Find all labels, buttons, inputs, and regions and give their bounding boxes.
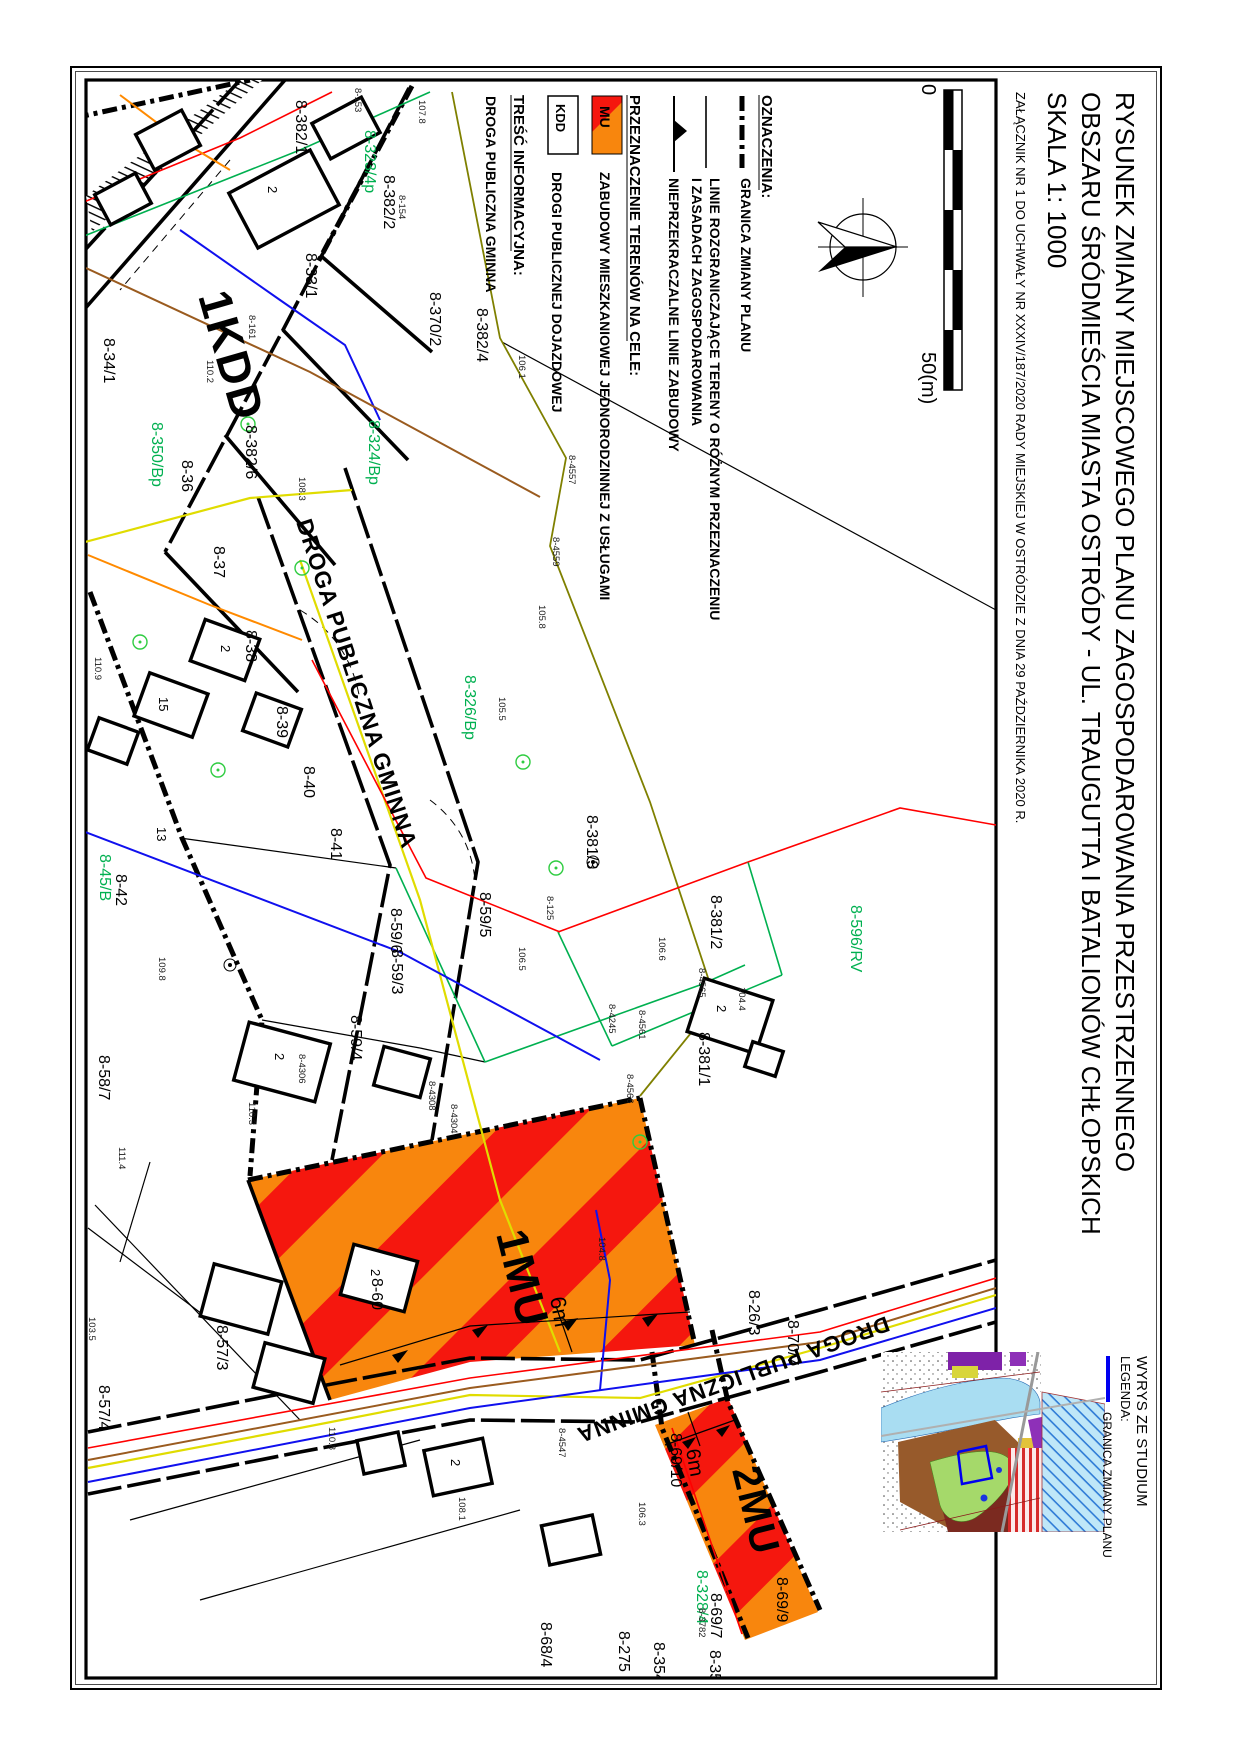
tiny-labels-item: 8-4561 bbox=[636, 1010, 647, 1040]
parcel-labels-item: 8-350/Bp bbox=[148, 422, 165, 487]
parcel-labels-item: 8-323/4p bbox=[361, 130, 378, 193]
tree-icon bbox=[516, 755, 530, 769]
building-labels-item: 2 bbox=[272, 1053, 287, 1060]
parcel-labels-item: 8-324/Bp bbox=[365, 420, 382, 485]
parcel-labels-item: 8-69/7 bbox=[707, 1593, 724, 1638]
plan-title-line1: RYSUNEK ZMIANY MIEJSCOWEGO PLANU ZAGOSPO… bbox=[1110, 92, 1140, 1172]
linie-rozgraniczajace-label-2: I ZASADACH ZAGOSPODAROWANIA bbox=[689, 178, 705, 426]
tiny-labels-item: 8-4547 bbox=[556, 1428, 567, 1458]
tiny-labels-item: 106.1 bbox=[516, 355, 527, 379]
parcel-labels-item: 8-381/2 bbox=[707, 895, 724, 949]
parcel-labels-item: 8-41 bbox=[327, 828, 344, 860]
plan-title-line2: OBSZARU ŚRÓDMIEŚCIA MIASTA OSTRÓDY - UL.… bbox=[1076, 92, 1106, 1235]
parcel-labels-item: 8-36 bbox=[178, 460, 195, 492]
tiny-labels-item: 8-3782 bbox=[696, 1608, 707, 1638]
building-labels-item: 2 bbox=[265, 186, 280, 193]
parcel-labels-item: 8-275 bbox=[615, 1631, 632, 1672]
tiny-labels-item: 110.3 bbox=[246, 1102, 257, 1125]
tiny-labels-item: 8-154 bbox=[396, 195, 407, 219]
parcel-labels-item: 8-370/2 bbox=[426, 292, 443, 346]
parcel-labels-item: 8-57/3 bbox=[213, 1325, 230, 1370]
tiny-labels-item: 8-153 bbox=[352, 88, 363, 112]
kdd-label: DROGI PUBLICZNEJ DOJAZDOWEJ bbox=[549, 172, 565, 412]
tiny-labels-item: 8-4306 bbox=[296, 1054, 307, 1084]
nieprzekraczalne-symbol bbox=[674, 96, 687, 172]
plan-scale: SKALA 1: 1000 bbox=[1042, 92, 1072, 268]
building-labels-item: 2 bbox=[714, 1005, 729, 1012]
parcel-labels-item: 8-40 bbox=[300, 766, 317, 798]
parcel-labels-item: 8-45/B bbox=[96, 854, 113, 901]
mu-label: ZABUDOWY MIESZKANIOWEJ JEDNORODZINNEJ Z … bbox=[597, 172, 613, 600]
parcel-labels-item: 8-382/4 bbox=[473, 308, 490, 362]
parcel-labels-item: 8-354/ bbox=[650, 1642, 667, 1688]
tiny-labels-item: 106.6 bbox=[656, 937, 667, 961]
building-labels-item: 15 bbox=[156, 697, 171, 711]
parcel-labels-item: 8-69/10 bbox=[667, 1433, 684, 1487]
parcel-labels-item: 8-326/Bp bbox=[461, 675, 478, 740]
tiny-labels-item: 105.8 bbox=[536, 605, 547, 629]
przeznaczenie-heading: PRZEZNACZENIE TERENÓW NA CELE: bbox=[626, 95, 644, 376]
tiny-labels-item: 105.5 bbox=[496, 697, 507, 721]
tiny-labels-item: 106.5 bbox=[516, 947, 527, 971]
building-labels-item: 2 bbox=[448, 1459, 463, 1466]
tiny-labels-item: 110.8 bbox=[326, 1427, 337, 1450]
building-labels-item: 13 bbox=[154, 827, 169, 841]
parcel-labels-item: 8-60 bbox=[368, 1278, 385, 1310]
parcel-labels-item: 8-381/3 bbox=[583, 815, 600, 869]
map-content: 8-382/18-33/18-382/28-370/28-382/48-382/… bbox=[74, 80, 996, 1688]
droga-gminna-label: DROGA PUBLICZNA GMINNA bbox=[483, 96, 499, 293]
parcel-labels-item: 8-35 bbox=[706, 1650, 723, 1682]
kdd-code: KDD bbox=[553, 104, 568, 132]
tree-icon bbox=[211, 763, 225, 777]
parcel-labels-item: 8-42 bbox=[112, 874, 129, 906]
inset-granica-label: GRANICA ZMIANY PLANU bbox=[1100, 1412, 1114, 1558]
parcel-labels-item: 8-59/3 bbox=[388, 949, 405, 994]
scale-start: 0 bbox=[917, 84, 939, 95]
mu-code: MU bbox=[597, 106, 613, 128]
title-block: RYSUNEK ZMIANY MIEJSCOWEGO PLANU ZAGOSPO… bbox=[1013, 92, 1140, 1235]
tree-icon bbox=[549, 861, 563, 875]
scale-end: 50(m) bbox=[917, 352, 939, 404]
building-labels-item: 2 bbox=[218, 645, 233, 652]
tiny-labels-item: 106.3 bbox=[636, 1502, 647, 1526]
parcel-labels-item: 8-59/6 bbox=[387, 908, 404, 953]
dim-labels-item: 6m bbox=[545, 1295, 575, 1329]
tiny-labels-item: 8-4557 bbox=[566, 455, 577, 485]
inset-title: WYRYS ZE STUDIUM bbox=[1133, 1356, 1150, 1507]
tiny-labels-item: 8-4566 bbox=[624, 1074, 635, 1104]
inset-legend-heading: LEGENDA: bbox=[1118, 1356, 1133, 1422]
linie-rozgraniczajace-label-1: LINIE ROZGRANICZAJĄCE TERENY O RÓŻNYM PR… bbox=[707, 178, 724, 620]
parcel-labels-item: 8-59/4 bbox=[347, 1015, 364, 1060]
parcel-labels-item: 8-382/1 bbox=[292, 100, 309, 154]
tiny-labels-item: 107.8 bbox=[416, 100, 427, 124]
tresc-heading: TREŚĆ INFORMACYJNA: bbox=[510, 95, 528, 276]
tiny-labels-item: 104.8 bbox=[596, 1237, 607, 1261]
tiny-labels-item: 8-4565 bbox=[696, 968, 707, 998]
zone-labels-item: 1KDD bbox=[188, 284, 275, 426]
building-labels-item: 2 bbox=[368, 1269, 383, 1276]
legend-heading: OZNACZENIA: bbox=[758, 95, 775, 198]
tiny-labels-item: 8-125 bbox=[544, 896, 555, 920]
inset-map: WYRYS ZE STUDIUM LEGENDA: GRANICA ZMIANY… bbox=[881, 1352, 1150, 1558]
parcel-labels-item: 8-596/RV bbox=[847, 905, 864, 973]
north-arrow-icon bbox=[818, 198, 908, 297]
parcel-labels-item: 8-59/5 bbox=[476, 892, 493, 937]
road-labels-item: DROGA PUBLICZNA GMINNA bbox=[291, 516, 422, 852]
plan-drawing: 8-382/18-33/18-382/28-370/28-382/48-382/… bbox=[0, 0, 1240, 1754]
parcel-labels-item: 8-381/1 bbox=[695, 1032, 712, 1086]
parcel-labels-item: 8-382/2 bbox=[380, 175, 397, 229]
tiny-labels-item: 108.3 bbox=[296, 477, 307, 501]
parcel-labels-item: 8-26/3 bbox=[745, 1290, 762, 1335]
parcel-labels-item: 8-38 bbox=[242, 630, 259, 662]
granica-label: GRANICA ZMIANY PLANU bbox=[738, 178, 754, 352]
tiny-labels-item: 8-4308 bbox=[426, 1081, 437, 1111]
tiny-labels-item: 110.9 bbox=[92, 657, 103, 680]
parcel-labels-item: 8-37 bbox=[210, 546, 227, 578]
survey-point-icon bbox=[224, 959, 236, 971]
tiny-labels-item: 8-4559 bbox=[550, 537, 561, 567]
parcel-labels-item: 8-57/4 bbox=[95, 1385, 112, 1430]
plan-page: 8-382/18-33/18-382/28-370/28-382/48-382/… bbox=[0, 0, 1240, 1754]
parcel-labels-item: 8-68/4 bbox=[537, 1622, 554, 1667]
parcel-labels-item: 8-58/7 bbox=[95, 1055, 112, 1100]
scale-bar: 0 50(m) bbox=[917, 84, 962, 404]
plan-attachment-note: ZAŁĄCZNIK NR 1 DO UCHWAŁY NR XXXIV/187/2… bbox=[1013, 92, 1028, 823]
tiny-labels-item: 108.1 bbox=[456, 1497, 467, 1521]
parcel-labels-item: 8-69/9 bbox=[773, 1577, 790, 1622]
tiny-labels-item: 104.4 bbox=[736, 987, 747, 1011]
nieprzekraczalne-label: NIEPRZEKRACZALNE LINIE ZABUDOWY bbox=[666, 178, 682, 452]
tiny-labels-item: 8-4304 bbox=[448, 1104, 459, 1134]
parcel-labels-item: 8-33/1 bbox=[302, 253, 319, 298]
tiny-labels-item: 8-4245 bbox=[606, 1004, 617, 1034]
parcel-labels-item: 8-34/1 bbox=[100, 338, 117, 383]
parcel-labels-item: 8-382/6 bbox=[242, 425, 259, 479]
tiny-labels-item: 111.4 bbox=[116, 1147, 127, 1169]
tiny-labels-item: 103.5 bbox=[86, 1317, 97, 1341]
tiny-labels-item: 109.8 bbox=[156, 957, 167, 981]
parcel-labels-item: 8-39 bbox=[273, 706, 290, 738]
tree-icon bbox=[133, 635, 147, 649]
